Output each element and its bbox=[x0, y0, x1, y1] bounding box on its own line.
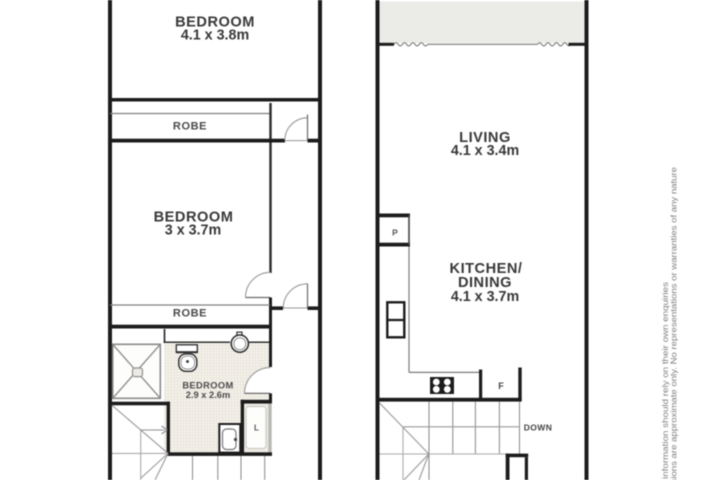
svg-text:4.1 x 3.7m: 4.1 x 3.7m bbox=[451, 289, 519, 305]
svg-text:are given and prospective purc: are given and prospective purchasers rel… bbox=[660, 282, 670, 480]
svg-text:ROBE: ROBE bbox=[173, 121, 207, 133]
svg-text:ROBE: ROBE bbox=[173, 308, 207, 320]
svg-text:P: P bbox=[392, 228, 398, 238]
svg-text:3 x 3.7m: 3 x 3.7m bbox=[165, 223, 221, 239]
svg-text:F: F bbox=[498, 381, 504, 391]
svg-text:4.1 x 3.4m: 4.1 x 3.4m bbox=[451, 143, 519, 159]
svg-text:4.1 x 3.8m: 4.1 x 3.8m bbox=[181, 28, 249, 44]
svg-text:BEDROOM: BEDROOM bbox=[182, 381, 233, 391]
svg-text:L: L bbox=[254, 424, 259, 433]
svg-text:DOWN: DOWN bbox=[524, 423, 553, 433]
svg-text:2.9 x 2.6m: 2.9 x 2.6m bbox=[186, 390, 230, 400]
svg-text:All plans and dimensions are a: All plans and dimensions are approximate… bbox=[669, 167, 679, 480]
